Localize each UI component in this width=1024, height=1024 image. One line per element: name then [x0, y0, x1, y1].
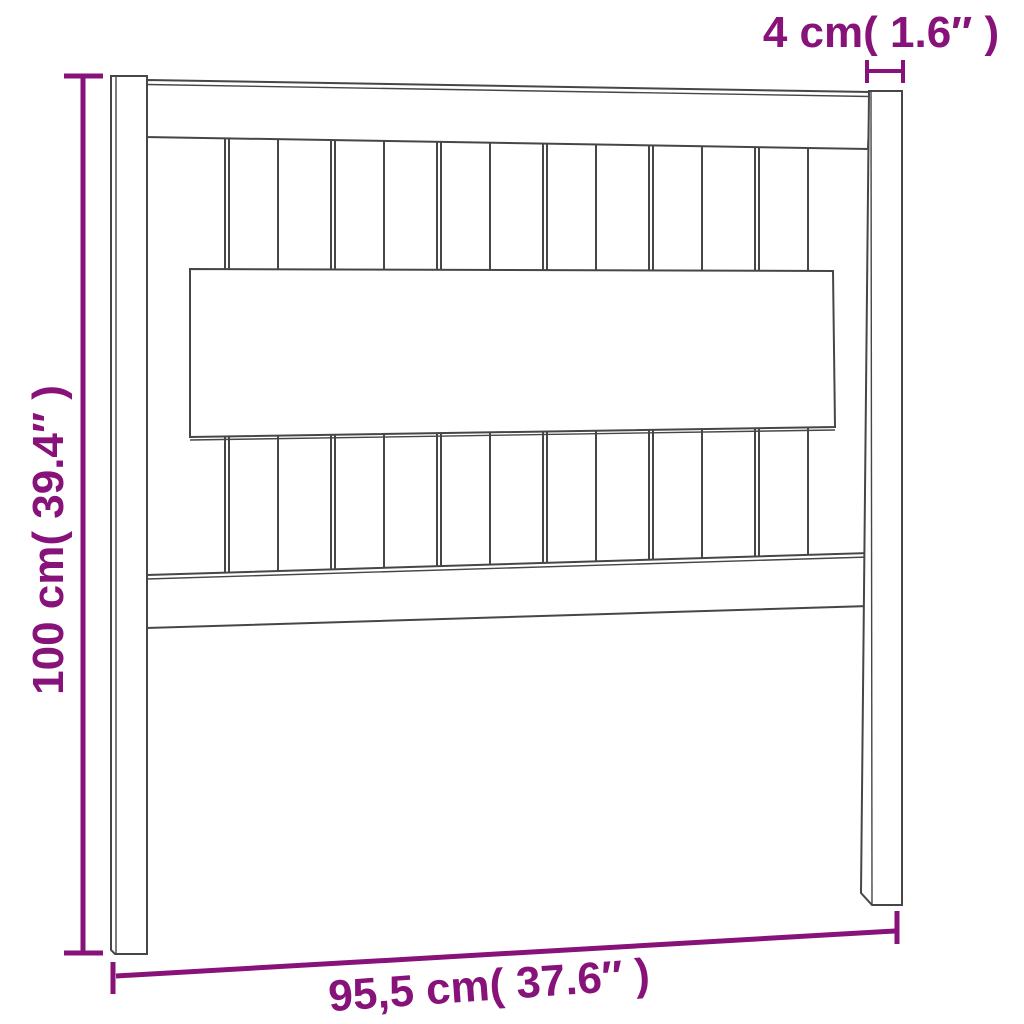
top-rail — [145, 80, 870, 149]
left-post — [111, 76, 147, 954]
height-dimension-label: 100 cm( 39.4″ ) — [24, 385, 73, 695]
center-panel — [190, 269, 835, 440]
middle-rail — [147, 553, 869, 628]
post-width-label: 4 cm( 1.6″ ) — [763, 8, 999, 57]
headboard-drawing: 100 cm( 39.4″ ) 4 cm( 1.6″ ) 95,5 cm( 37… — [0, 0, 1024, 1024]
right-post — [861, 91, 902, 905]
product-dimension-diagram: 100 cm( 39.4″ ) 4 cm( 1.6″ ) 95,5 cm( 37… — [0, 0, 1024, 1024]
post-width-bracket — [867, 60, 903, 83]
